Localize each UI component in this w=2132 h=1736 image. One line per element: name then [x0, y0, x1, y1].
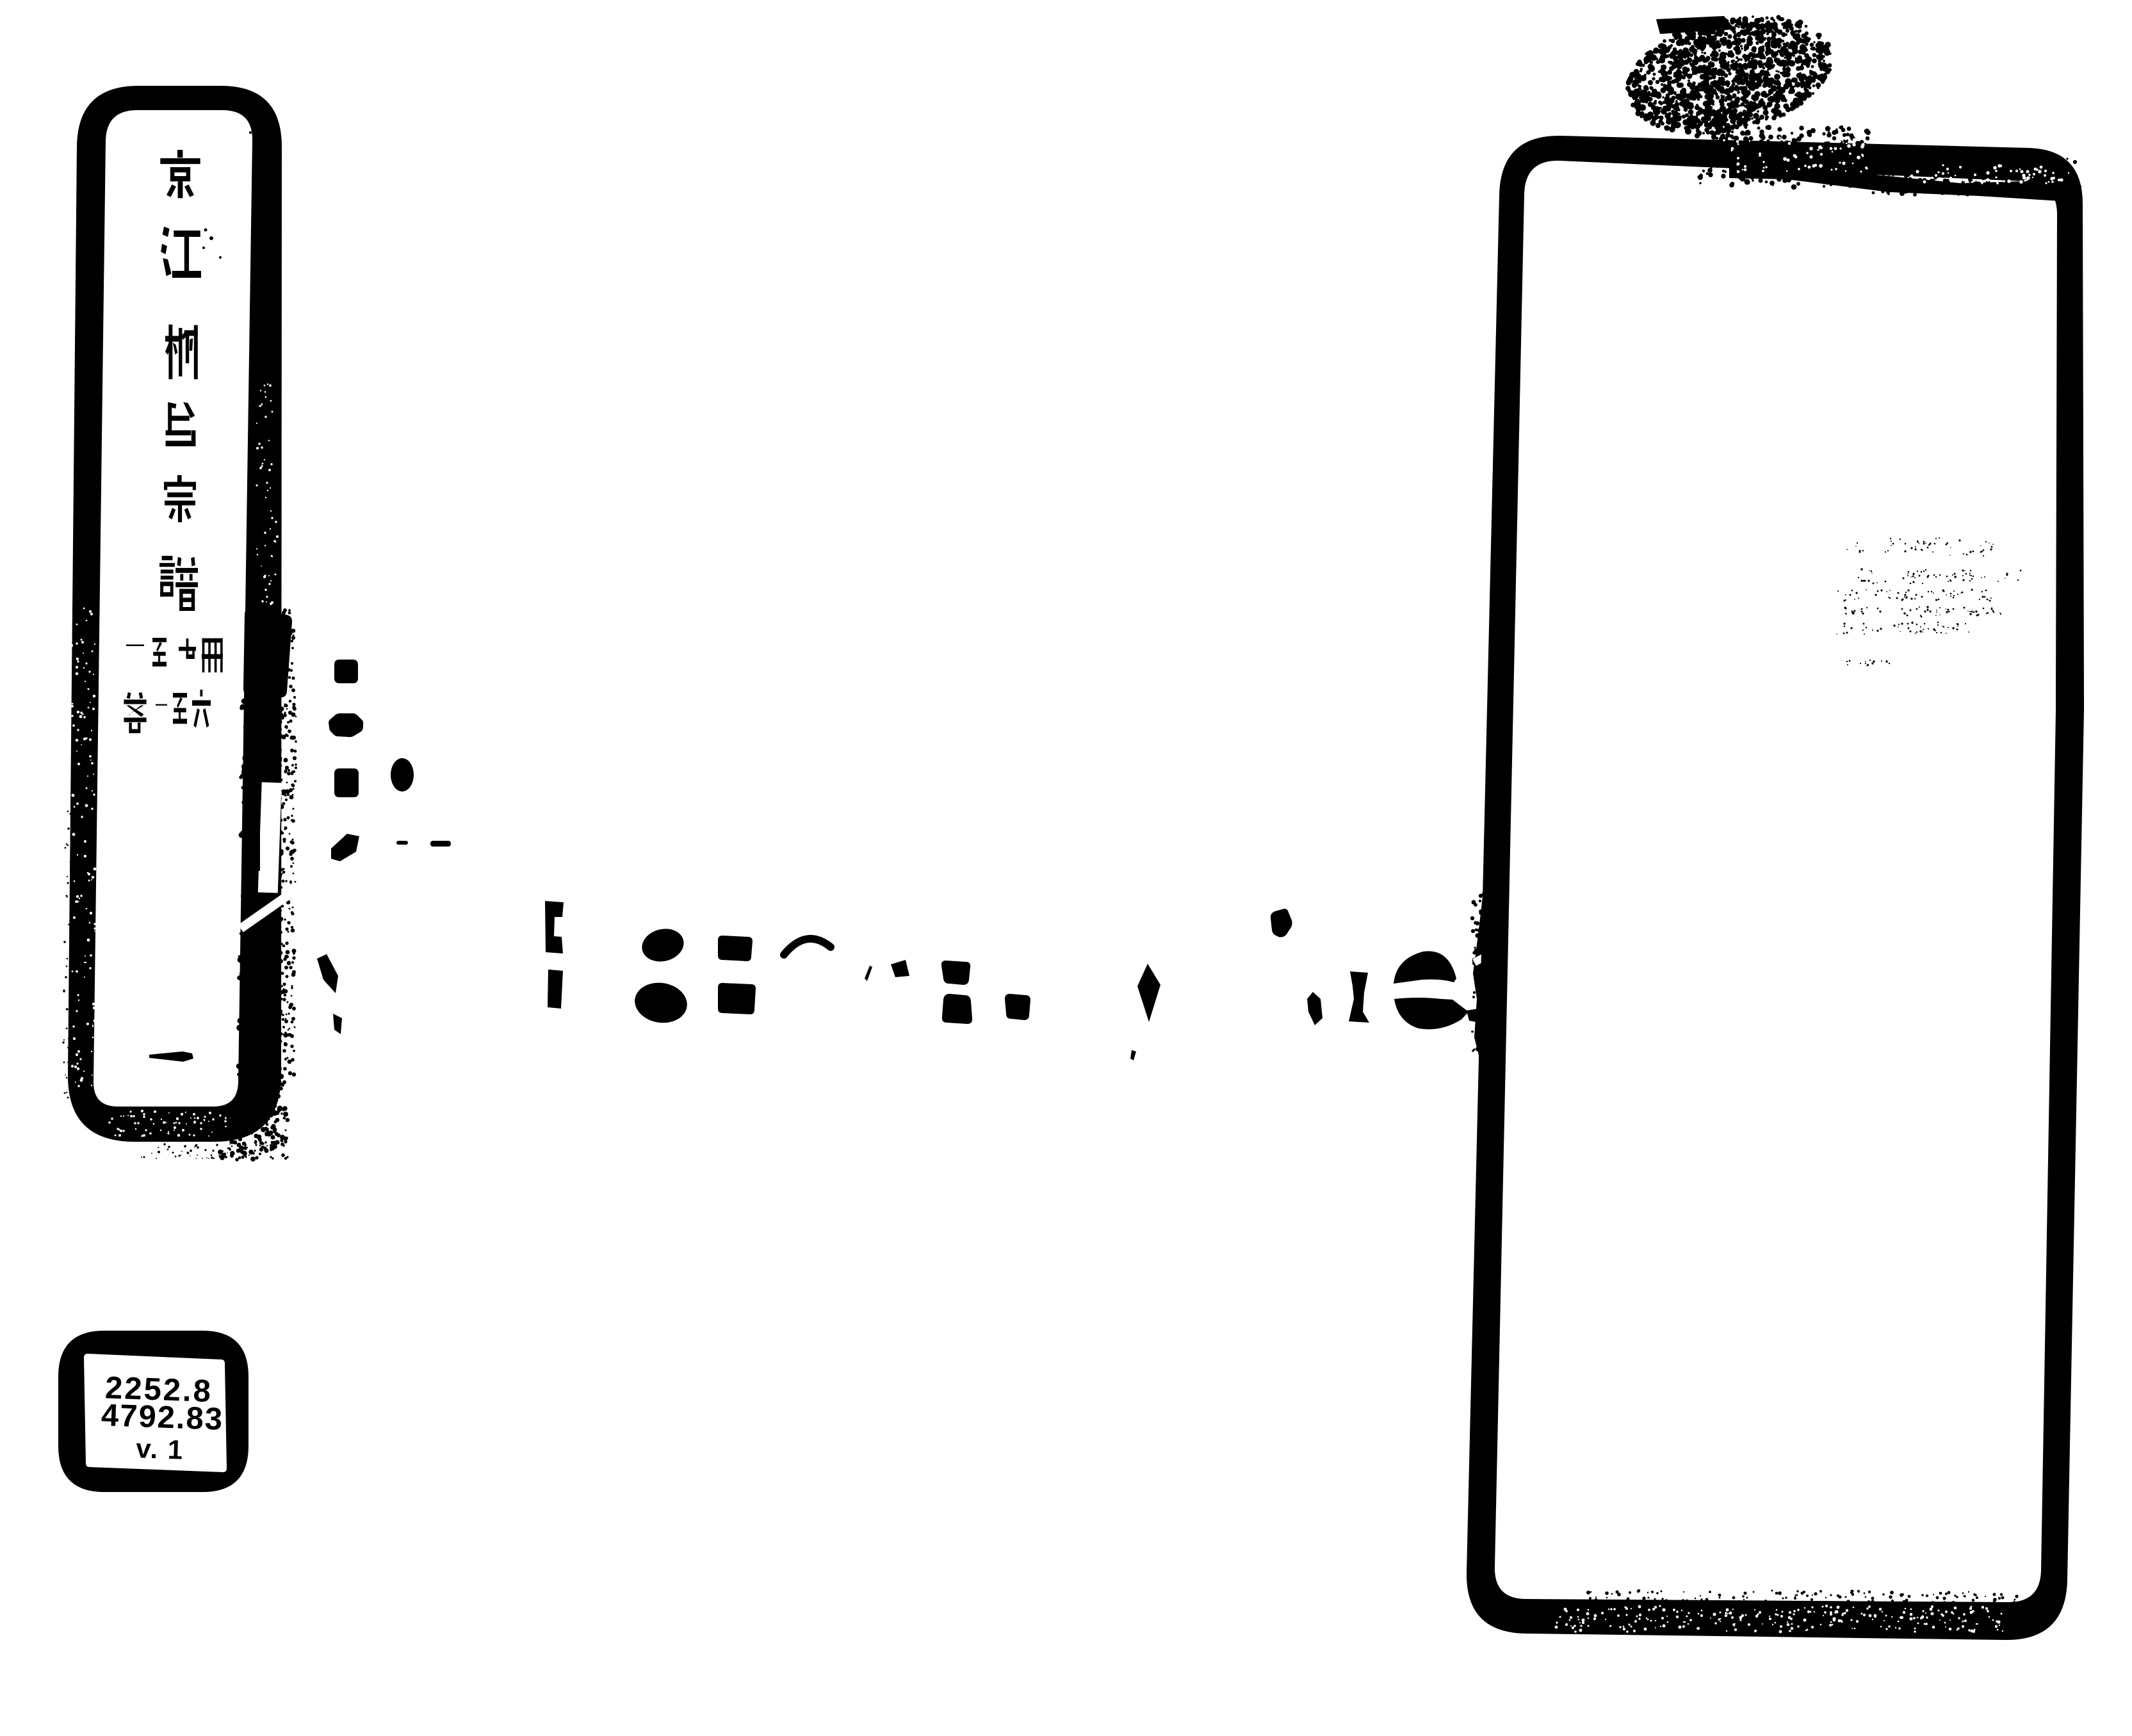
svg-text:v. 1: v. 1: [136, 1433, 185, 1465]
svg-text:4792.83: 4792.83: [101, 1398, 224, 1437]
